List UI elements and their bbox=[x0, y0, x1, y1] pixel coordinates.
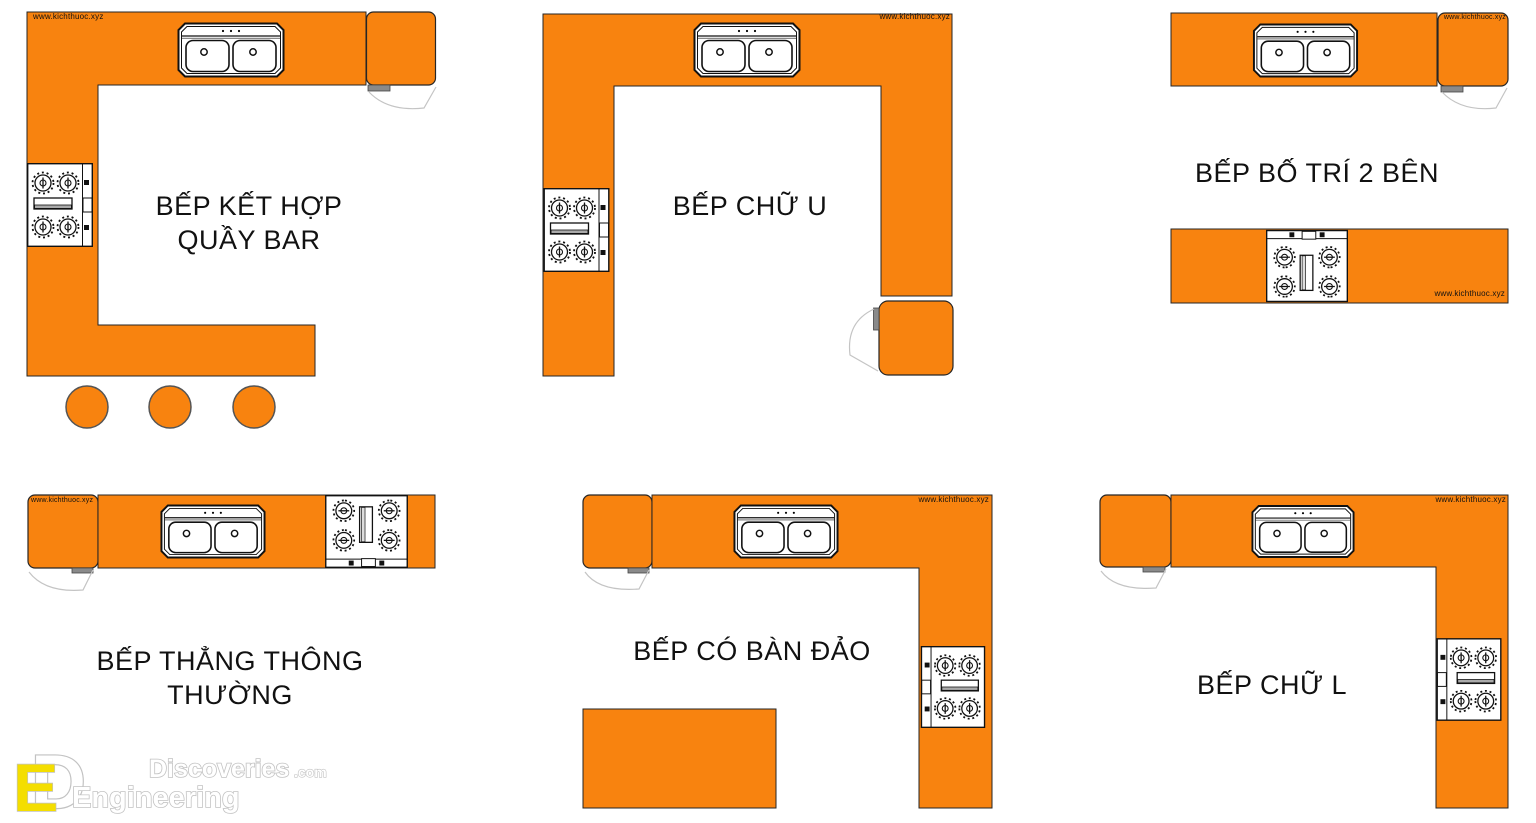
double-bowl-sink-icon bbox=[161, 505, 264, 557]
watermark-text: www.kichthuoc.xyz bbox=[1440, 14, 1506, 22]
door-swing-icon bbox=[1101, 567, 1166, 588]
door-side-cabinet bbox=[583, 495, 652, 568]
layout-title-bep-ket-hop-quay-bar: BẾP KẾT HỢP QUẦY BAR bbox=[99, 189, 399, 257]
logo-discoveries-text: Discoveries bbox=[149, 755, 289, 783]
door-swing-icon bbox=[585, 568, 649, 589]
bar-stool-icon bbox=[66, 386, 108, 428]
bar-stools bbox=[66, 386, 275, 428]
layout-title-bep-bo-tri-2-ben: BẾP BỐ TRÍ 2 BÊN bbox=[1167, 156, 1467, 190]
logo-engineering-text: Engineering bbox=[72, 782, 240, 814]
layout-title-bep-thang-thong-thuong: BẾP THẲNG THÔNG THƯỜNG bbox=[30, 644, 430, 712]
bar-stool-icon bbox=[233, 386, 275, 428]
door-side-cabinet bbox=[1438, 13, 1508, 86]
watermark-text: www.kichthuoc.xyz bbox=[31, 497, 97, 505]
engineering-discoveries-logo: D E Discoveries .com Engineering bbox=[6, 740, 346, 823]
layout-title-bep-chu-u: BẾP CHỮ U bbox=[600, 189, 900, 223]
double-bowl-sink-icon bbox=[734, 505, 837, 557]
door-swing-icon bbox=[1441, 86, 1507, 109]
door-side-cabinet bbox=[28, 495, 98, 568]
door-swing-icon bbox=[368, 85, 436, 109]
island-counter bbox=[583, 709, 776, 808]
layout-bep-thang-thong-thuong bbox=[28, 495, 435, 590]
door-swing-icon bbox=[850, 308, 880, 371]
four-burner-cooktop-icon bbox=[28, 164, 93, 247]
four-burner-cooktop-icon bbox=[326, 496, 407, 568]
double-bowl-sink-icon bbox=[1252, 506, 1353, 557]
layout-title-bep-co-ban-dao: BẾP CÓ BÀN ĐẢO bbox=[602, 634, 902, 668]
door-side-cabinet bbox=[1100, 495, 1171, 567]
watermark-text: www.kichthuoc.xyz bbox=[830, 13, 950, 21]
layout-title-bep-chu-l: BẾP CHỮ L bbox=[1122, 668, 1422, 702]
logo-graphic: D E Discoveries .com Engineering bbox=[6, 740, 346, 823]
four-burner-cooktop-icon bbox=[1437, 639, 1501, 720]
double-bowl-sink-icon bbox=[179, 24, 284, 77]
logo-com-suffix: .com bbox=[294, 764, 327, 780]
watermark-text: www.kichthuoc.xyz bbox=[33, 13, 104, 21]
door-swing-icon bbox=[29, 568, 93, 590]
bar-stool-icon bbox=[149, 386, 191, 428]
four-burner-cooktop-icon bbox=[1267, 231, 1348, 302]
door-side-cabinet bbox=[367, 12, 436, 85]
four-burner-cooktop-icon bbox=[921, 647, 984, 728]
watermark-text: www.kichthuoc.xyz bbox=[1386, 496, 1506, 504]
layout-bep-chu-l bbox=[1100, 495, 1508, 808]
double-bowl-sink-icon bbox=[1254, 24, 1357, 76]
kitchen-layouts-page: BẾP KẾT HỢP QUẦY BAR BẾP CHỮ U BẾP BỐ TR… bbox=[0, 0, 1536, 823]
watermark-text: www.kichthuoc.xyz bbox=[1385, 290, 1505, 298]
logo-monogram-e: E bbox=[13, 750, 58, 823]
double-bowl-sink-icon bbox=[695, 24, 800, 77]
door-side-cabinet bbox=[879, 301, 953, 375]
watermark-text: www.kichthuoc.xyz bbox=[869, 496, 989, 504]
